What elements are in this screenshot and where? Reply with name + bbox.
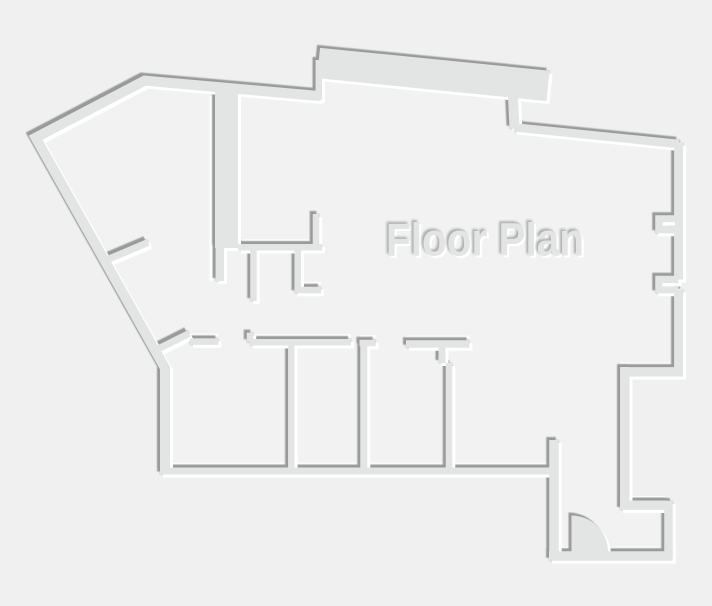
svg-text:Floor Plan: Floor Plan — [386, 214, 584, 266]
